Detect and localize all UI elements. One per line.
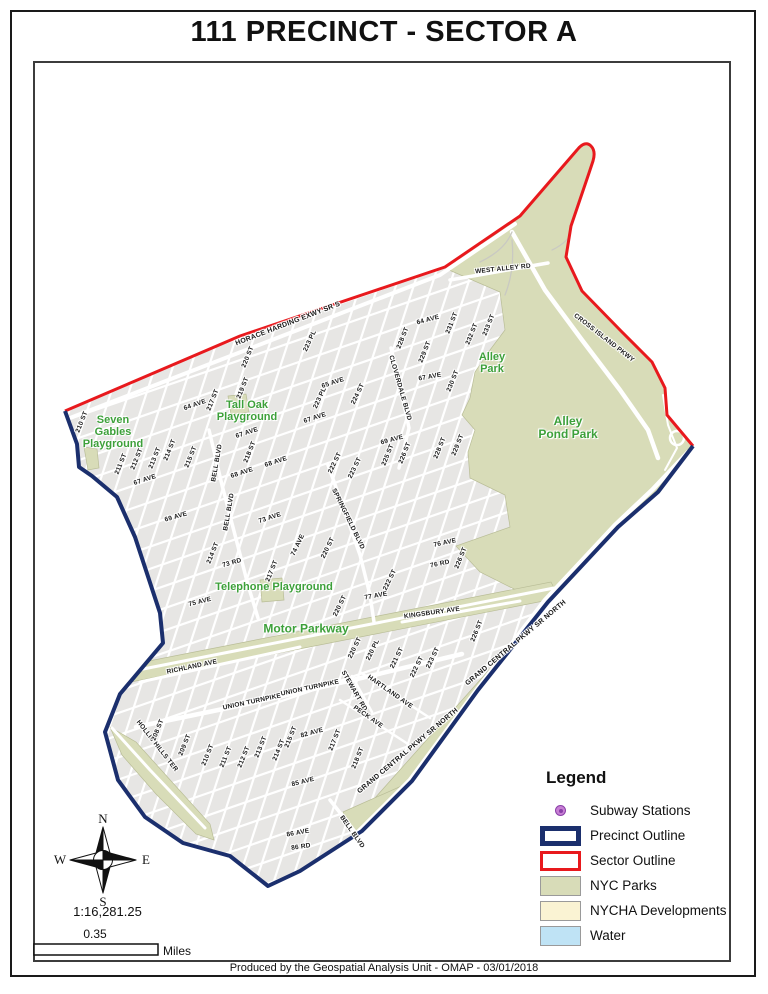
legend-swatch-water	[540, 926, 581, 946]
precinct-map-page: 111 PRECINCT - SECTOR A	[0, 0, 768, 994]
legend-item-sector-outline: Sector Outline	[540, 848, 732, 873]
legend: Legend Subway StationsPrecinct OutlineSe…	[540, 768, 732, 948]
legend-swatch-parks	[540, 876, 581, 896]
footer-credit: Produced by the Geospatial Analysis Unit…	[0, 962, 768, 974]
legend-item-water: Water	[540, 923, 732, 948]
compass-rose	[70, 827, 136, 893]
legend-label: Water	[590, 928, 626, 943]
legend-swatch-nycha	[540, 901, 581, 921]
scale-ratio: 1:16,281.25	[45, 904, 170, 919]
tall-oak-playground-area	[228, 394, 249, 415]
legend-title: Legend	[546, 768, 732, 788]
scale-distance: 0.35	[45, 927, 145, 941]
legend-item-subway-stations: Subway Stations	[540, 798, 732, 823]
legend-label: NYCHA Developments	[590, 903, 727, 918]
compass-east-label: E	[142, 852, 150, 868]
subway-station-icon	[540, 801, 581, 821]
scale-bar	[34, 944, 158, 955]
legend-swatch-sector	[540, 851, 581, 871]
compass-north-label: N	[98, 811, 107, 827]
compass-west-label: W	[54, 852, 66, 868]
legend-swatch-precinct	[540, 826, 581, 846]
legend-label: Subway Stations	[590, 803, 691, 818]
legend-label: Sector Outline	[590, 853, 676, 868]
legend-item-nycha-developments: NYCHA Developments	[540, 898, 732, 923]
legend-label: NYC Parks	[590, 878, 657, 893]
telephone-playground-area	[260, 578, 284, 602]
legend-item-nyc-parks: NYC Parks	[540, 873, 732, 898]
scale-unit: Miles	[163, 944, 191, 958]
legend-label: Precinct Outline	[590, 828, 685, 843]
legend-item-precinct-outline: Precinct Outline	[540, 823, 732, 848]
